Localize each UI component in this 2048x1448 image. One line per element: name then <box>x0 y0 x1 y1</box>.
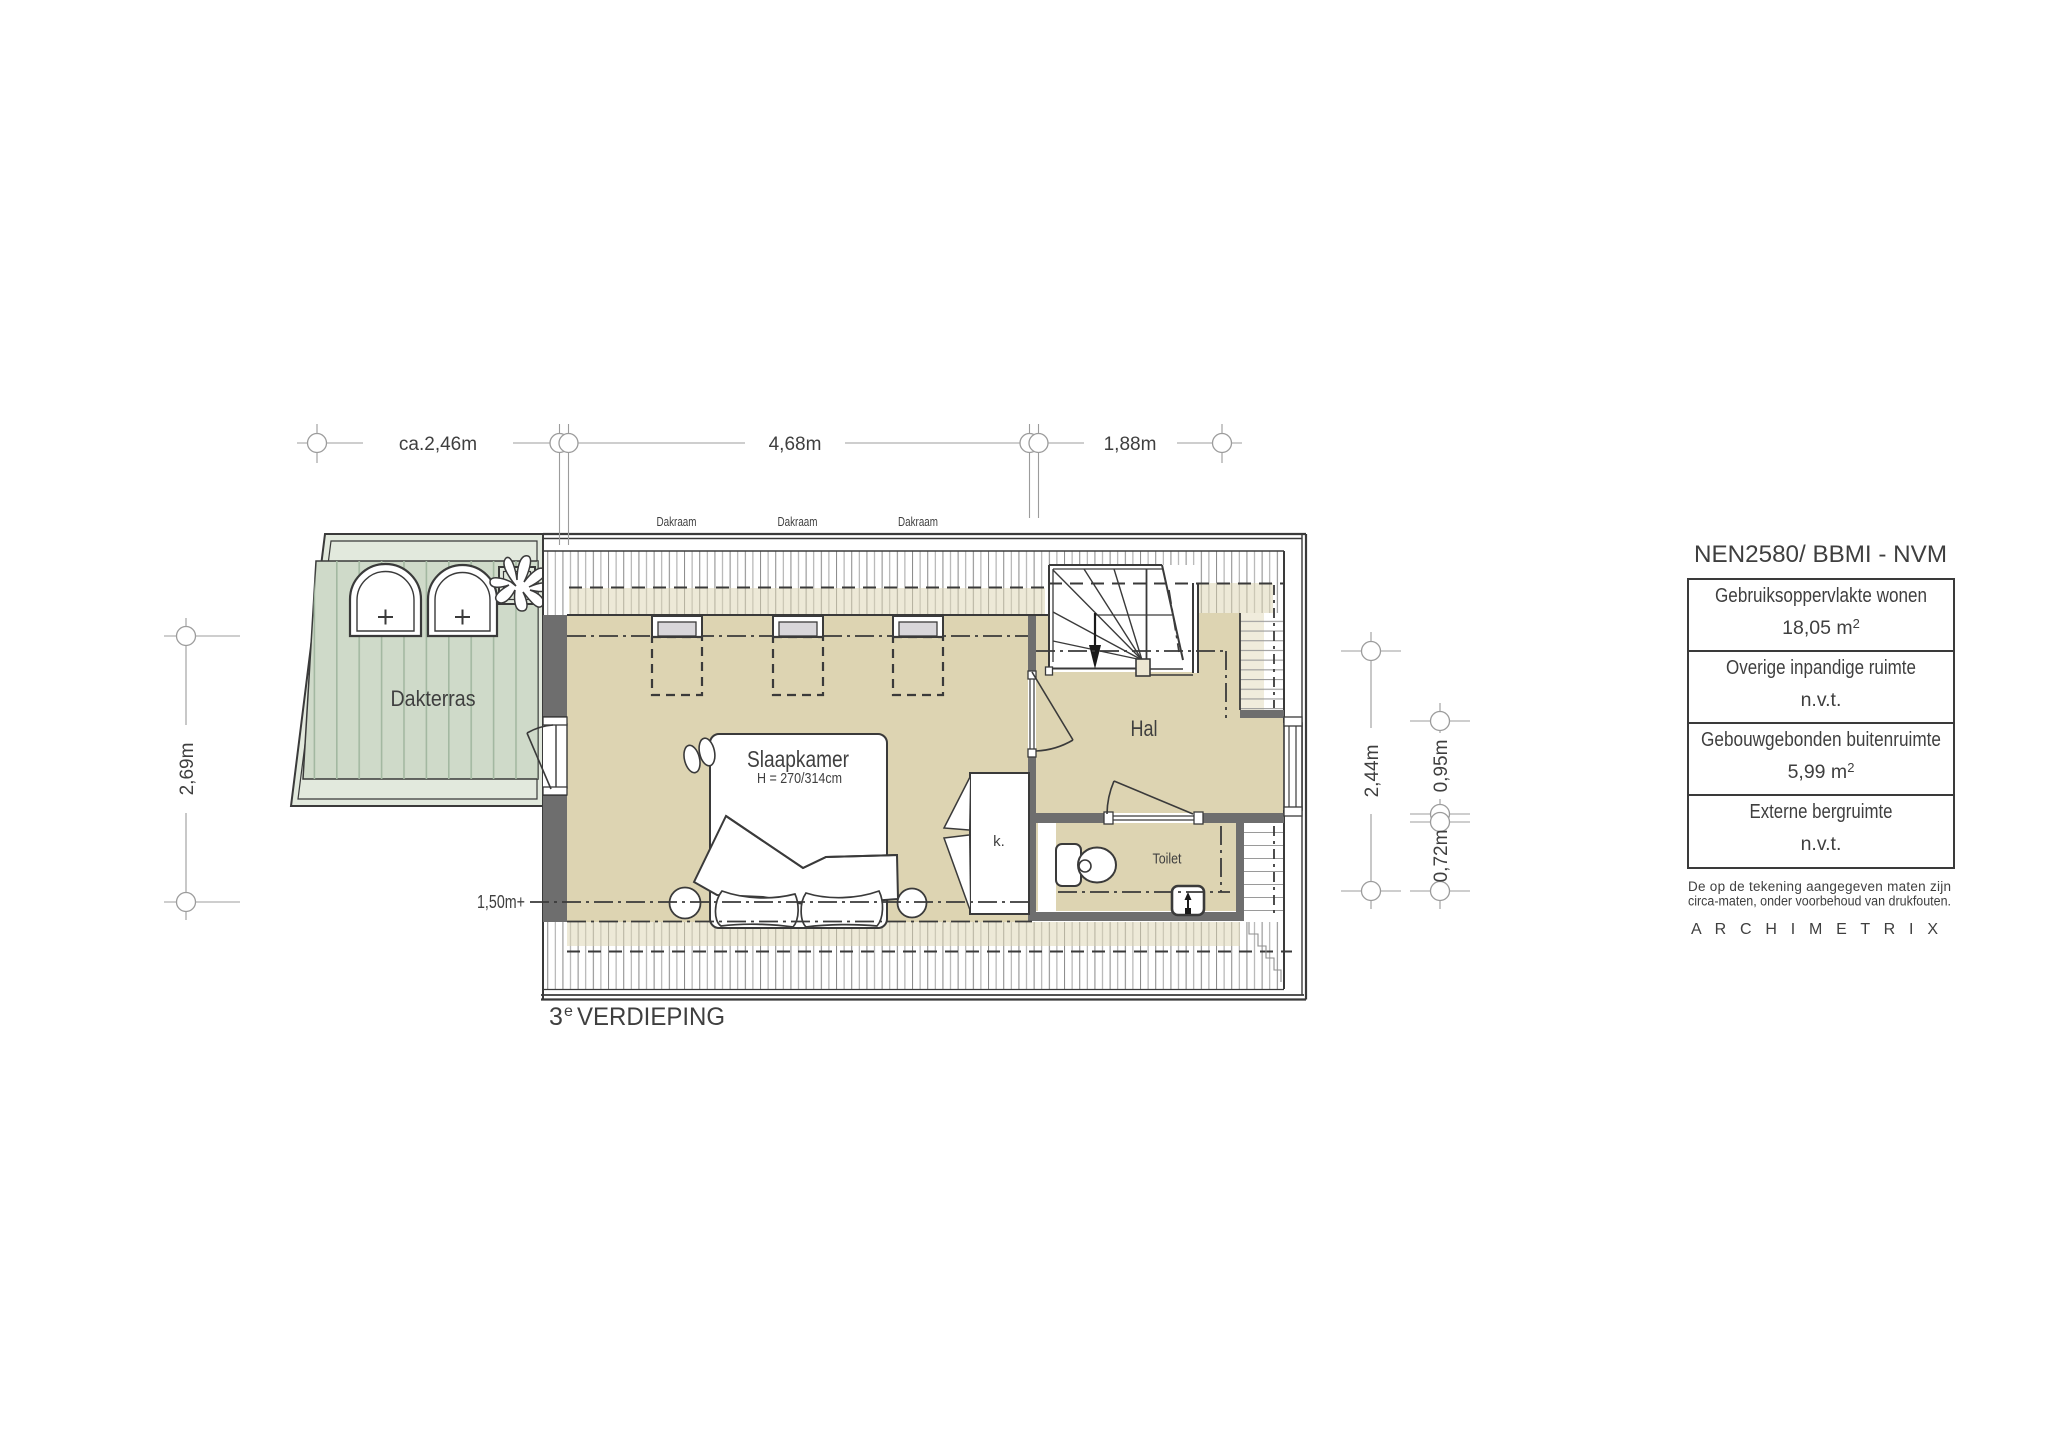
svg-text:n.v.t.: n.v.t. <box>1801 833 1842 855</box>
svg-text:H = 270/314cm: H = 270/314cm <box>757 770 842 787</box>
svg-text:NEN2580/ BBMI - NVM: NEN2580/ BBMI - NVM <box>1694 541 1947 568</box>
svg-text:0,95m: 0,95m <box>1431 740 1452 793</box>
svg-text:Dakraam: Dakraam <box>778 514 818 529</box>
svg-text:5,99 m2: 5,99 m2 <box>1788 760 1855 783</box>
svg-text:Gebouwgebonden buitenruimte: Gebouwgebonden buitenruimte <box>1701 729 1941 751</box>
svg-text:k.: k. <box>993 833 1005 850</box>
svg-text:e: e <box>564 1003 573 1020</box>
svg-text:Toilet: Toilet <box>1153 851 1183 868</box>
svg-text:Dakraam: Dakraam <box>657 514 697 529</box>
svg-text:1,88m: 1,88m <box>1104 434 1157 455</box>
svg-text:Dakraam: Dakraam <box>898 514 938 529</box>
svg-text:De op de tekening aangegeven m: De op de tekening aangegeven maten zijn <box>1688 879 1951 894</box>
svg-text:ca.2,46m: ca.2,46m <box>399 434 477 455</box>
svg-text:VERDIEPING: VERDIEPING <box>577 1003 725 1031</box>
svg-text:1,50m+: 1,50m+ <box>477 892 525 912</box>
svg-text:3: 3 <box>549 1003 563 1031</box>
svg-text:Hal: Hal <box>1131 716 1158 741</box>
svg-text:0,72m: 0,72m <box>1431 830 1452 883</box>
svg-text:circa-maten, onder voorbehoud: circa-maten, onder voorbehoud van drukfo… <box>1688 894 1951 909</box>
svg-text:2,44m: 2,44m <box>1362 745 1383 798</box>
svg-text:Externe bergruimte: Externe bergruimte <box>1750 801 1893 823</box>
svg-text:2,69m: 2,69m <box>177 743 198 796</box>
svg-text:4,68m: 4,68m <box>769 434 822 455</box>
svg-text:Gebruiksoppervlakte wonen: Gebruiksoppervlakte wonen <box>1715 585 1927 607</box>
svg-text:Overige inpandige ruimte: Overige inpandige ruimte <box>1726 657 1916 679</box>
svg-text:Slaapkamer: Slaapkamer <box>747 746 849 772</box>
svg-text:18,05 m2: 18,05 m2 <box>1782 616 1860 639</box>
svg-text:Dakterras: Dakterras <box>391 686 476 711</box>
svg-text:n.v.t.: n.v.t. <box>1801 689 1842 711</box>
